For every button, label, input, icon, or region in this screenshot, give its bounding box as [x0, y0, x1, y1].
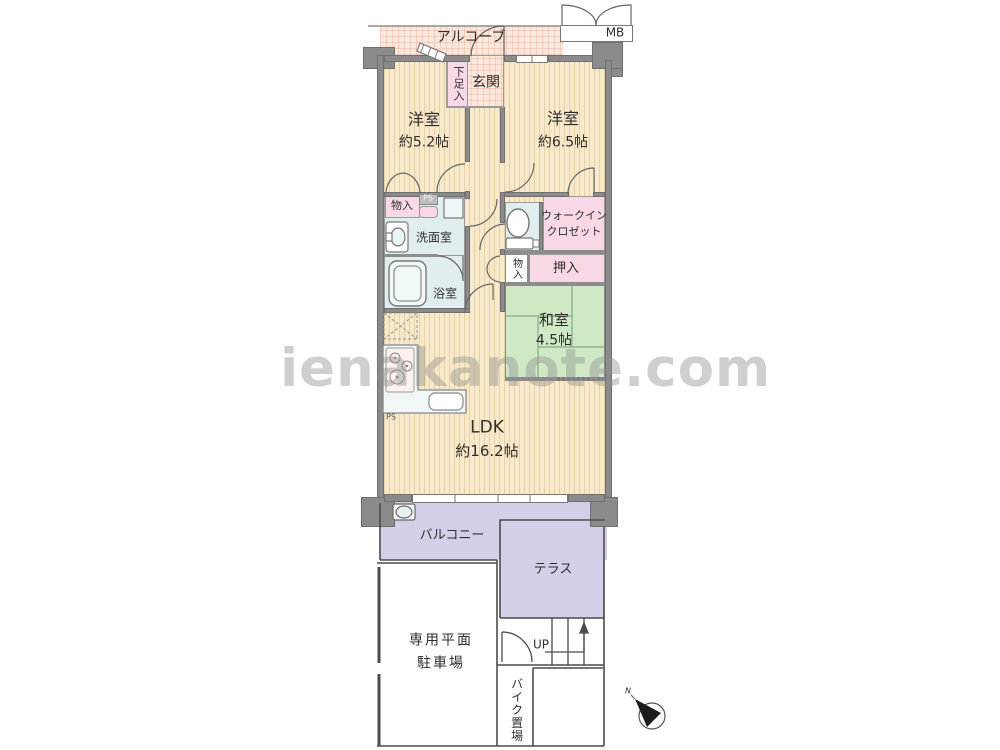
storage-west-label: 物入 — [391, 200, 413, 212]
entrance-step-line — [446, 106, 504, 108]
compass-north-label: N — [625, 688, 631, 697]
wall-washitsu-bottom — [505, 377, 605, 381]
washroom-label: 洗面室 — [416, 231, 452, 244]
bathroom-label: 浴室 — [433, 287, 457, 300]
wall-h-bed2b — [593, 192, 605, 197]
ldk-size: 約16.2帖 — [455, 443, 518, 460]
floor-plan: アルコーブ MB 玄関 下足入 洋室 約5.2帖 洋室 約6.5帖 物入 PS … — [0, 0, 1000, 750]
bedroom1-size: 約5.2帖 — [399, 135, 449, 150]
wall-wash-bath — [384, 254, 438, 257]
shoe-storage-label: 下足入 — [452, 66, 464, 102]
stairs-up-label: UP — [533, 638, 549, 651]
storage-hall-label: 物入 — [511, 258, 522, 280]
meter-box-label: MB — [606, 26, 625, 39]
wall-right — [605, 60, 612, 503]
wall-h-storage-top — [505, 250, 605, 254]
wall-storage-oshiire — [527, 255, 530, 283]
parking-label-2: 駐車場 — [417, 656, 465, 671]
wall-bottom-a — [384, 494, 412, 502]
wall-h-bed2a — [504, 192, 569, 197]
room-toilet — [505, 202, 540, 252]
wall-v2-a — [500, 107, 505, 163]
bedroom2-size: 約6.5帖 — [538, 135, 588, 150]
wall-oshiire-bottom — [505, 282, 605, 285]
wall-v2-b — [500, 192, 505, 223]
entrance-label: 玄関 — [472, 75, 500, 90]
pipe-space-pipe — [419, 206, 438, 218]
bedroom1-name: 洋室 — [408, 111, 440, 129]
oshiire-label: 押入 — [553, 262, 579, 276]
japanese-room-size: 4.5帖 — [536, 333, 572, 348]
pipe-space-bottom-label: PS — [386, 414, 396, 423]
bedroom2-name: 洋室 — [547, 110, 579, 128]
pipe-space-top-label: PS — [423, 195, 433, 204]
compass-icon — [631, 695, 665, 729]
mb-doors — [562, 5, 631, 25]
wall-top-c — [548, 55, 594, 62]
parking-label-1: 専用平面 — [409, 633, 473, 648]
wall-left — [377, 55, 384, 503]
wall-bottom-b — [568, 494, 605, 502]
bike-storage-label: バイク置場 — [509, 678, 522, 743]
balcony-label: バルコニー — [420, 529, 485, 543]
wall-v1-c — [465, 226, 470, 312]
terrace-label: テラス — [534, 563, 573, 577]
wall-top-a — [384, 55, 470, 62]
alcove-label: アルコーブ — [437, 30, 506, 45]
wic-label-1: ウォークイン — [541, 210, 607, 222]
room-bathroom — [384, 255, 465, 311]
wall-v1-b — [465, 191, 470, 199]
wall-bath-bottom — [384, 308, 470, 313]
ldk-name: LDK — [470, 419, 504, 438]
window-bedroom2 — [516, 55, 548, 63]
wall-v2-d — [500, 282, 505, 312]
wall-v1-a — [465, 107, 470, 162]
japanese-room-name: 和室 — [539, 312, 569, 329]
window-ldk-balcony — [412, 494, 568, 503]
wic-label-2: クロゼット — [547, 226, 602, 238]
